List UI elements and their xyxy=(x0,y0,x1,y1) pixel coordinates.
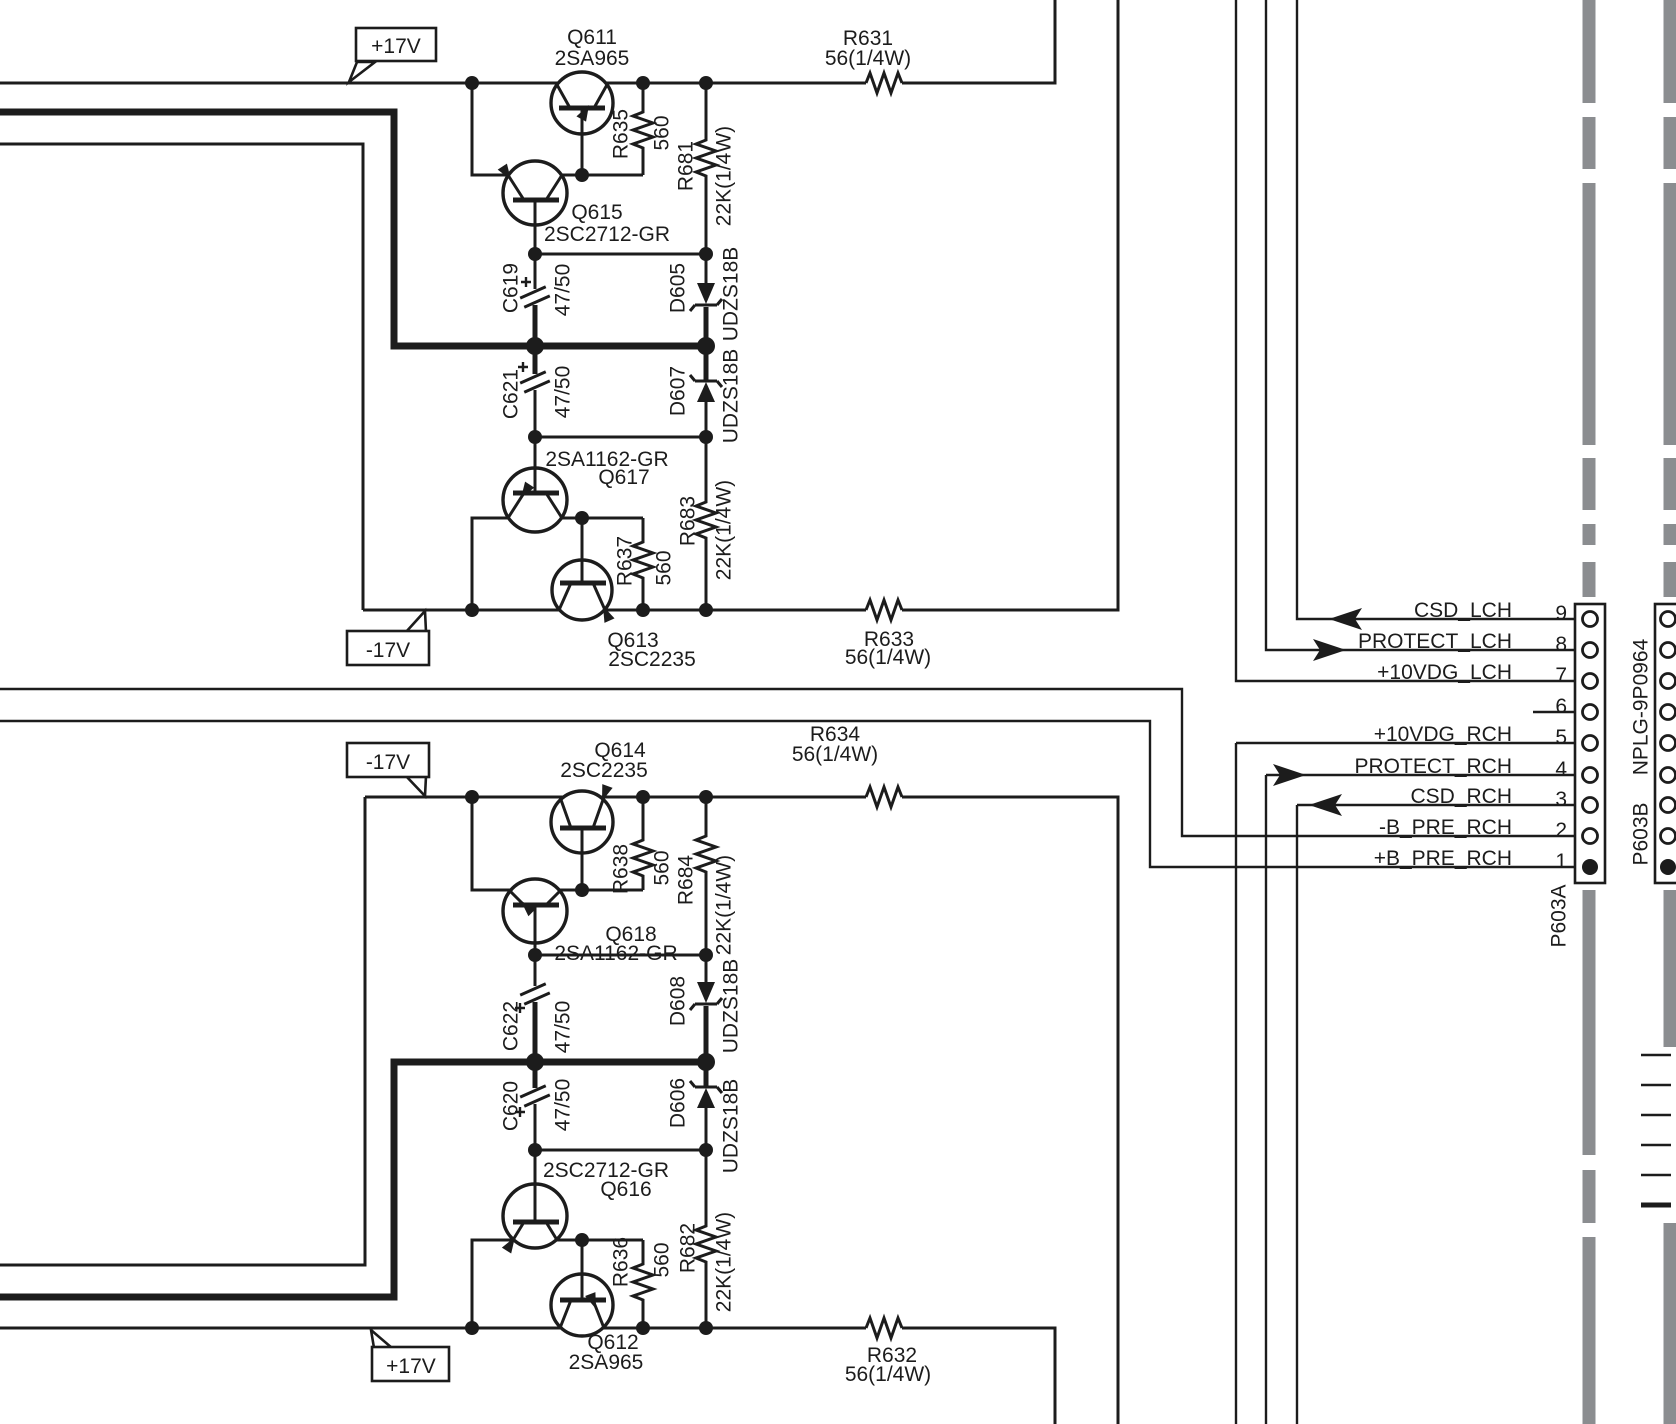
pin-number: 7 xyxy=(1555,664,1567,687)
pin-number: 6 xyxy=(1555,695,1567,718)
label-r681-value: 22K(1/4W) xyxy=(713,126,736,226)
label-r636-value: 560 xyxy=(651,1242,674,1277)
label-d608-part: UDZS18B xyxy=(720,959,743,1054)
label-q613-part: 2SC2235 xyxy=(608,648,696,671)
signal-label-plus-b-pre-rch: +B_PRE_RCH xyxy=(1374,847,1512,870)
label-d606-ref: D606 xyxy=(667,1078,690,1128)
signal-label-csd-lch: CSD_LCH xyxy=(1414,599,1512,622)
flag-label: -17V xyxy=(366,751,410,774)
pin-circle-7 xyxy=(1583,674,1598,689)
label-c619-value: 47/50 xyxy=(552,264,575,317)
label-c622-value: 47/50 xyxy=(552,1001,575,1054)
signal-label-10vdg-lch: +10VDG_LCH xyxy=(1377,661,1512,684)
label-d605-part: UDZS18B xyxy=(720,247,743,342)
label-q614-part: 2SC2235 xyxy=(560,759,648,782)
label-d608-ref: D608 xyxy=(667,976,690,1026)
label-c622-ref: C622 xyxy=(500,1001,523,1051)
label-r635-value: 560 xyxy=(651,115,674,150)
pin-circle-1-filled xyxy=(1582,859,1598,875)
connector-part-nplg: NPLG-9P0964 xyxy=(1630,638,1653,775)
label-q616-ref: Q616 xyxy=(600,1178,651,1201)
pin-circle-2 xyxy=(1583,829,1598,844)
pin-number: 4 xyxy=(1555,758,1567,781)
schematic-page: +17V -17V -17V +17V Q611 2SA965 Q615 2SC… xyxy=(0,0,1676,1424)
pin-circle-4 xyxy=(1583,768,1598,783)
label-c621-value: 47/50 xyxy=(552,366,575,419)
label-r684-ref: R684 xyxy=(675,855,698,906)
signal-labels: CSD_LCH PROTECT_LCH +10VDG_LCH +10VDG_RC… xyxy=(1354,599,1512,870)
label-d605-ref: D605 xyxy=(667,263,690,313)
label-q611-part: 2SA965 xyxy=(555,47,630,70)
label-r684-value: 22K(1/4W) xyxy=(713,855,736,955)
label-q612-part: 2SA965 xyxy=(569,1351,644,1374)
flag-label: +17V xyxy=(386,1355,436,1378)
label-r631-value: 56(1/4W) xyxy=(825,47,911,70)
label-r638-ref: R638 xyxy=(610,844,633,894)
label-r637-ref: R637 xyxy=(614,536,637,586)
label-r682-value: 22K(1/4W) xyxy=(713,1212,736,1312)
flag-label: +17V xyxy=(371,35,421,58)
connector-name-p603b: P603B xyxy=(1630,802,1653,865)
pin-number: 9 xyxy=(1555,602,1567,625)
label-c619-ref: C619 xyxy=(500,263,523,313)
label-d607-ref: D607 xyxy=(667,366,690,416)
label-r682-ref: R682 xyxy=(677,1223,700,1273)
label-c620-ref: C620 xyxy=(500,1081,523,1131)
label-q611-ref: Q611 xyxy=(567,26,617,49)
signal-label-csd-rch: CSD_RCH xyxy=(1410,785,1512,808)
signal-label-protect-rch: PROTECT_RCH xyxy=(1354,755,1512,778)
label-d606-part: UDZS18B xyxy=(720,1079,743,1174)
pin-number: 5 xyxy=(1555,726,1567,749)
label-r632-value: 56(1/4W) xyxy=(845,1363,931,1386)
signal-label-minus-b-pre-rch: -B_PRE_RCH xyxy=(1379,816,1512,839)
schematic-canvas: +17V -17V -17V +17V Q611 2SA965 Q615 2SC… xyxy=(0,0,1676,1424)
pin-circle-8 xyxy=(1583,643,1598,658)
label-d607-part: UDZS18B xyxy=(720,349,743,444)
label-r638-value: 560 xyxy=(651,850,674,885)
connector-name-p603a: P603A xyxy=(1548,884,1571,947)
pin-number: 2 xyxy=(1555,819,1567,842)
pin-circle-3 xyxy=(1583,798,1598,813)
label-r633-value: 56(1/4W) xyxy=(845,646,931,669)
label-c621-ref: C621 xyxy=(500,369,523,419)
label-r634-value: 56(1/4W) xyxy=(792,743,878,766)
label-q618-part: 2SA1162-GR xyxy=(554,942,677,965)
pin-circle-6 xyxy=(1583,705,1598,720)
pin-number: 1 xyxy=(1555,850,1567,873)
label-r637-value: 560 xyxy=(653,550,676,585)
pin-numbers: 9 8 7 6 5 4 3 2 1 xyxy=(1555,602,1567,873)
label-c620-value: 47/50 xyxy=(552,1079,575,1132)
label-r681-ref: R681 xyxy=(675,141,698,191)
pin-circle-9 xyxy=(1583,612,1598,627)
label-r635-ref: R635 xyxy=(610,109,633,159)
signal-label-10vdg-rch: +10VDG_RCH xyxy=(1374,723,1512,746)
label-r683-value: 22K(1/4W) xyxy=(713,480,736,580)
label-q615-ref: Q615 xyxy=(571,201,622,224)
flag-label: -17V xyxy=(366,639,410,662)
label-r636-ref: R636 xyxy=(610,1237,633,1287)
label-q617-ref: Q617 xyxy=(598,466,649,489)
pin-number: 8 xyxy=(1555,633,1567,656)
pin-number: 3 xyxy=(1555,788,1567,811)
pin-circle-5 xyxy=(1583,736,1598,751)
signal-label-protect-lch: PROTECT_LCH xyxy=(1358,630,1512,653)
label-r683-ref: R683 xyxy=(677,496,700,546)
page-background xyxy=(0,0,1676,1424)
label-q615-part: 2SC2712-GR xyxy=(544,223,670,246)
